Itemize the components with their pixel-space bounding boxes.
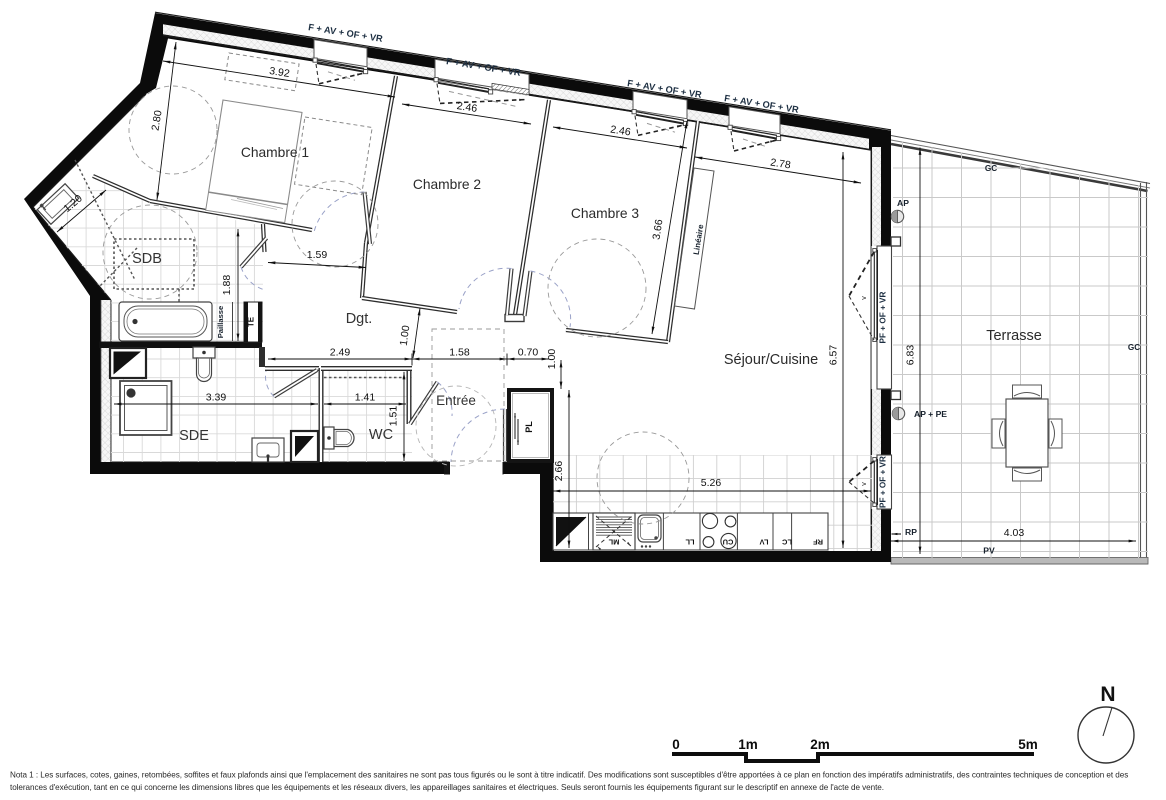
svg-text:6.83: 6.83 [905, 345, 917, 366]
svg-text:LL: LL [685, 538, 695, 547]
svg-text:LC: LC [781, 538, 792, 547]
svg-text:TE: TE [247, 316, 256, 327]
svg-text:PL: PL [524, 421, 534, 433]
svg-text:PV: PV [983, 546, 995, 556]
svg-text:0: 0 [672, 737, 680, 752]
svg-text:1.58: 1.58 [449, 347, 470, 359]
svg-text:SDE: SDE [179, 428, 209, 444]
svg-text:v: v [861, 296, 868, 300]
svg-text:Chambre 1: Chambre 1 [241, 145, 309, 160]
svg-text:GC: GC [985, 164, 997, 173]
svg-text:1.88: 1.88 [221, 275, 233, 296]
svg-text:Paillasse: Paillasse [216, 306, 225, 339]
svg-text:6.57: 6.57 [828, 345, 840, 366]
svg-text:WC: WC [369, 427, 393, 443]
svg-text:5.26: 5.26 [701, 477, 722, 489]
svg-text:AP: AP [897, 198, 909, 208]
svg-text:Chambre 2: Chambre 2 [413, 177, 481, 192]
svg-text:ML: ML [608, 538, 619, 547]
svg-text:Nota 1 : Les surfaces, cotes,: Nota 1 : Les surfaces, cotes, gaines, re… [10, 771, 1128, 780]
svg-text:1.00: 1.00 [546, 349, 558, 370]
svg-text:1.41: 1.41 [355, 392, 376, 404]
svg-text:2.66: 2.66 [553, 461, 565, 482]
svg-text:Entrée: Entrée [436, 393, 476, 408]
svg-text:2.49: 2.49 [330, 347, 351, 359]
svg-text:5m: 5m [1018, 737, 1038, 752]
svg-text:1m: 1m [738, 737, 758, 752]
svg-text:LV: LV [759, 538, 768, 547]
svg-text:RP: RP [905, 527, 917, 537]
svg-text:Séjour/Cuisine: Séjour/Cuisine [724, 352, 818, 368]
svg-text:RF: RF [813, 538, 823, 547]
svg-text:4.03: 4.03 [1004, 527, 1025, 539]
svg-text:tolerances d'exécution, tant e: tolerances d'exécution, tant en ce qui c… [10, 783, 884, 792]
svg-text:Dgt.: Dgt. [346, 311, 373, 327]
svg-text:1.51: 1.51 [388, 406, 400, 427]
svg-text:3.39: 3.39 [206, 392, 227, 404]
svg-text:N: N [1100, 683, 1115, 706]
svg-text:AP + PE: AP + PE [914, 409, 947, 419]
svg-text:GC: GC [1128, 343, 1140, 352]
svg-text:PF + OF + VR: PF + OF + VR [879, 456, 888, 508]
svg-text:0.70: 0.70 [518, 347, 539, 359]
svg-text:Chambre 3: Chambre 3 [571, 206, 640, 221]
svg-text:1.59: 1.59 [307, 249, 328, 261]
svg-text:PF + OF + VR: PF + OF + VR [879, 291, 888, 343]
svg-text:v: v [861, 482, 868, 486]
svg-text:SDB: SDB [132, 251, 162, 267]
svg-text:Terrasse: Terrasse [986, 328, 1042, 344]
svg-text:2m: 2m [810, 737, 830, 752]
svg-text:CU: CU [723, 538, 734, 547]
